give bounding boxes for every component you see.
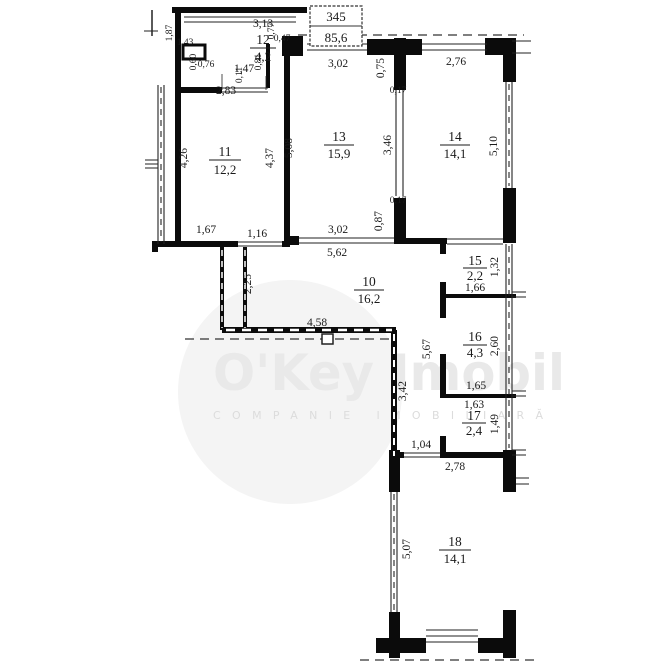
floor-plan: O'Key Imobil COMPANIE IMOBILIARĂ: [0, 0, 660, 672]
dim-room12-pier: 0,81: [254, 53, 264, 70]
watermark-subtitle: COMPANIE IMOBILIARĂ: [213, 409, 555, 422]
dim-room11-pier: 1,67: [196, 224, 216, 236]
room18-area: 14,1: [444, 551, 467, 566]
dim-hall-passage: 2,25: [242, 274, 254, 294]
room13-num: 13: [332, 129, 346, 144]
dim-room13-full: 5,62: [327, 247, 347, 259]
dim-part1314-bottom: 0,87: [373, 211, 385, 231]
dim-room14-top: 2,76: [446, 56, 466, 68]
dim-room18-top: 2,78: [445, 461, 465, 473]
dim-part1314-t2: 0,17: [390, 196, 407, 206]
dim-room11-door: 1,16: [247, 228, 267, 240]
dim-balcony12-w: 1,43: [177, 38, 194, 48]
dim-room18-left: 5,07: [401, 539, 413, 559]
dim-room17-right: 1,49: [489, 414, 501, 434]
room16-num: 16: [468, 329, 482, 344]
dim-room12-door-jamb: 0,11: [235, 67, 245, 84]
stamp-area: 85,6: [325, 30, 348, 45]
dim-hall-width: 4,58: [307, 317, 327, 329]
dim-room16-right: 2,60: [489, 336, 501, 356]
stamp: 345 85,6: [310, 6, 362, 46]
dim-part1314-t1: 0,17: [390, 86, 407, 96]
floor-plan-page: O'Key Imobil COMPANIE IMOBILIARĂ: [0, 0, 660, 672]
room11-area: 12,2: [214, 162, 237, 177]
dim-room14-right: 5,10: [488, 136, 500, 156]
dim-room11-width: 2,83: [216, 85, 236, 97]
room-label-18: 18 14,1: [439, 534, 471, 566]
room-label-13: 13 15,9: [324, 129, 354, 161]
room18-num: 18: [448, 534, 462, 549]
room15-area: 2,2: [467, 268, 483, 283]
dim-entry-jog-w: 0,47: [274, 34, 291, 44]
room16-area: 4,3: [467, 345, 483, 360]
room15-num: 15: [468, 253, 482, 268]
dim-room16-bottom: 1,65: [466, 380, 486, 392]
dim-room13-left: 5,08: [283, 138, 295, 158]
dim-room15-bottom: 1,66: [465, 282, 485, 294]
room11-num: 11: [219, 144, 232, 159]
room10-num: 10: [362, 274, 376, 289]
dim-room17-top: 1,63: [464, 399, 484, 411]
dim-part1314-top: 0,75: [375, 58, 387, 78]
room-label-15: 15 2,2: [463, 253, 487, 283]
room-label-10: 10 16,2: [354, 274, 384, 306]
dim-room11-left: 4,26: [178, 148, 190, 168]
dim-room13-top: 3,02: [328, 58, 348, 70]
room13-area: 15,9: [328, 146, 351, 161]
room17-area: 2,4: [466, 423, 483, 438]
stamp-number: 345: [326, 9, 346, 24]
dim-room13-bottom: 3,02: [328, 224, 348, 236]
dim-room15-right: 1,32: [489, 257, 501, 277]
dim-room13-right: 3,46: [382, 135, 394, 155]
room10-area: 16,2: [358, 291, 381, 306]
dim-hall-left: 3,42: [397, 381, 409, 401]
dim-room18-door: 1,04: [411, 439, 431, 451]
dim-balcony12-h: 1,87: [165, 24, 175, 41]
room-label-11: 11 12,2: [209, 144, 241, 177]
room14-num: 14: [448, 129, 462, 144]
room14-area: 14,1: [444, 146, 467, 161]
dim-room12-niche-w: 0,76: [198, 60, 215, 70]
dim-room12-niche-h: 0,60: [189, 53, 199, 70]
room-label-14: 14 14,1: [440, 129, 470, 161]
dim-hall-wall: 5,67: [421, 339, 433, 359]
dim-room11-right: 4,37: [264, 148, 276, 168]
